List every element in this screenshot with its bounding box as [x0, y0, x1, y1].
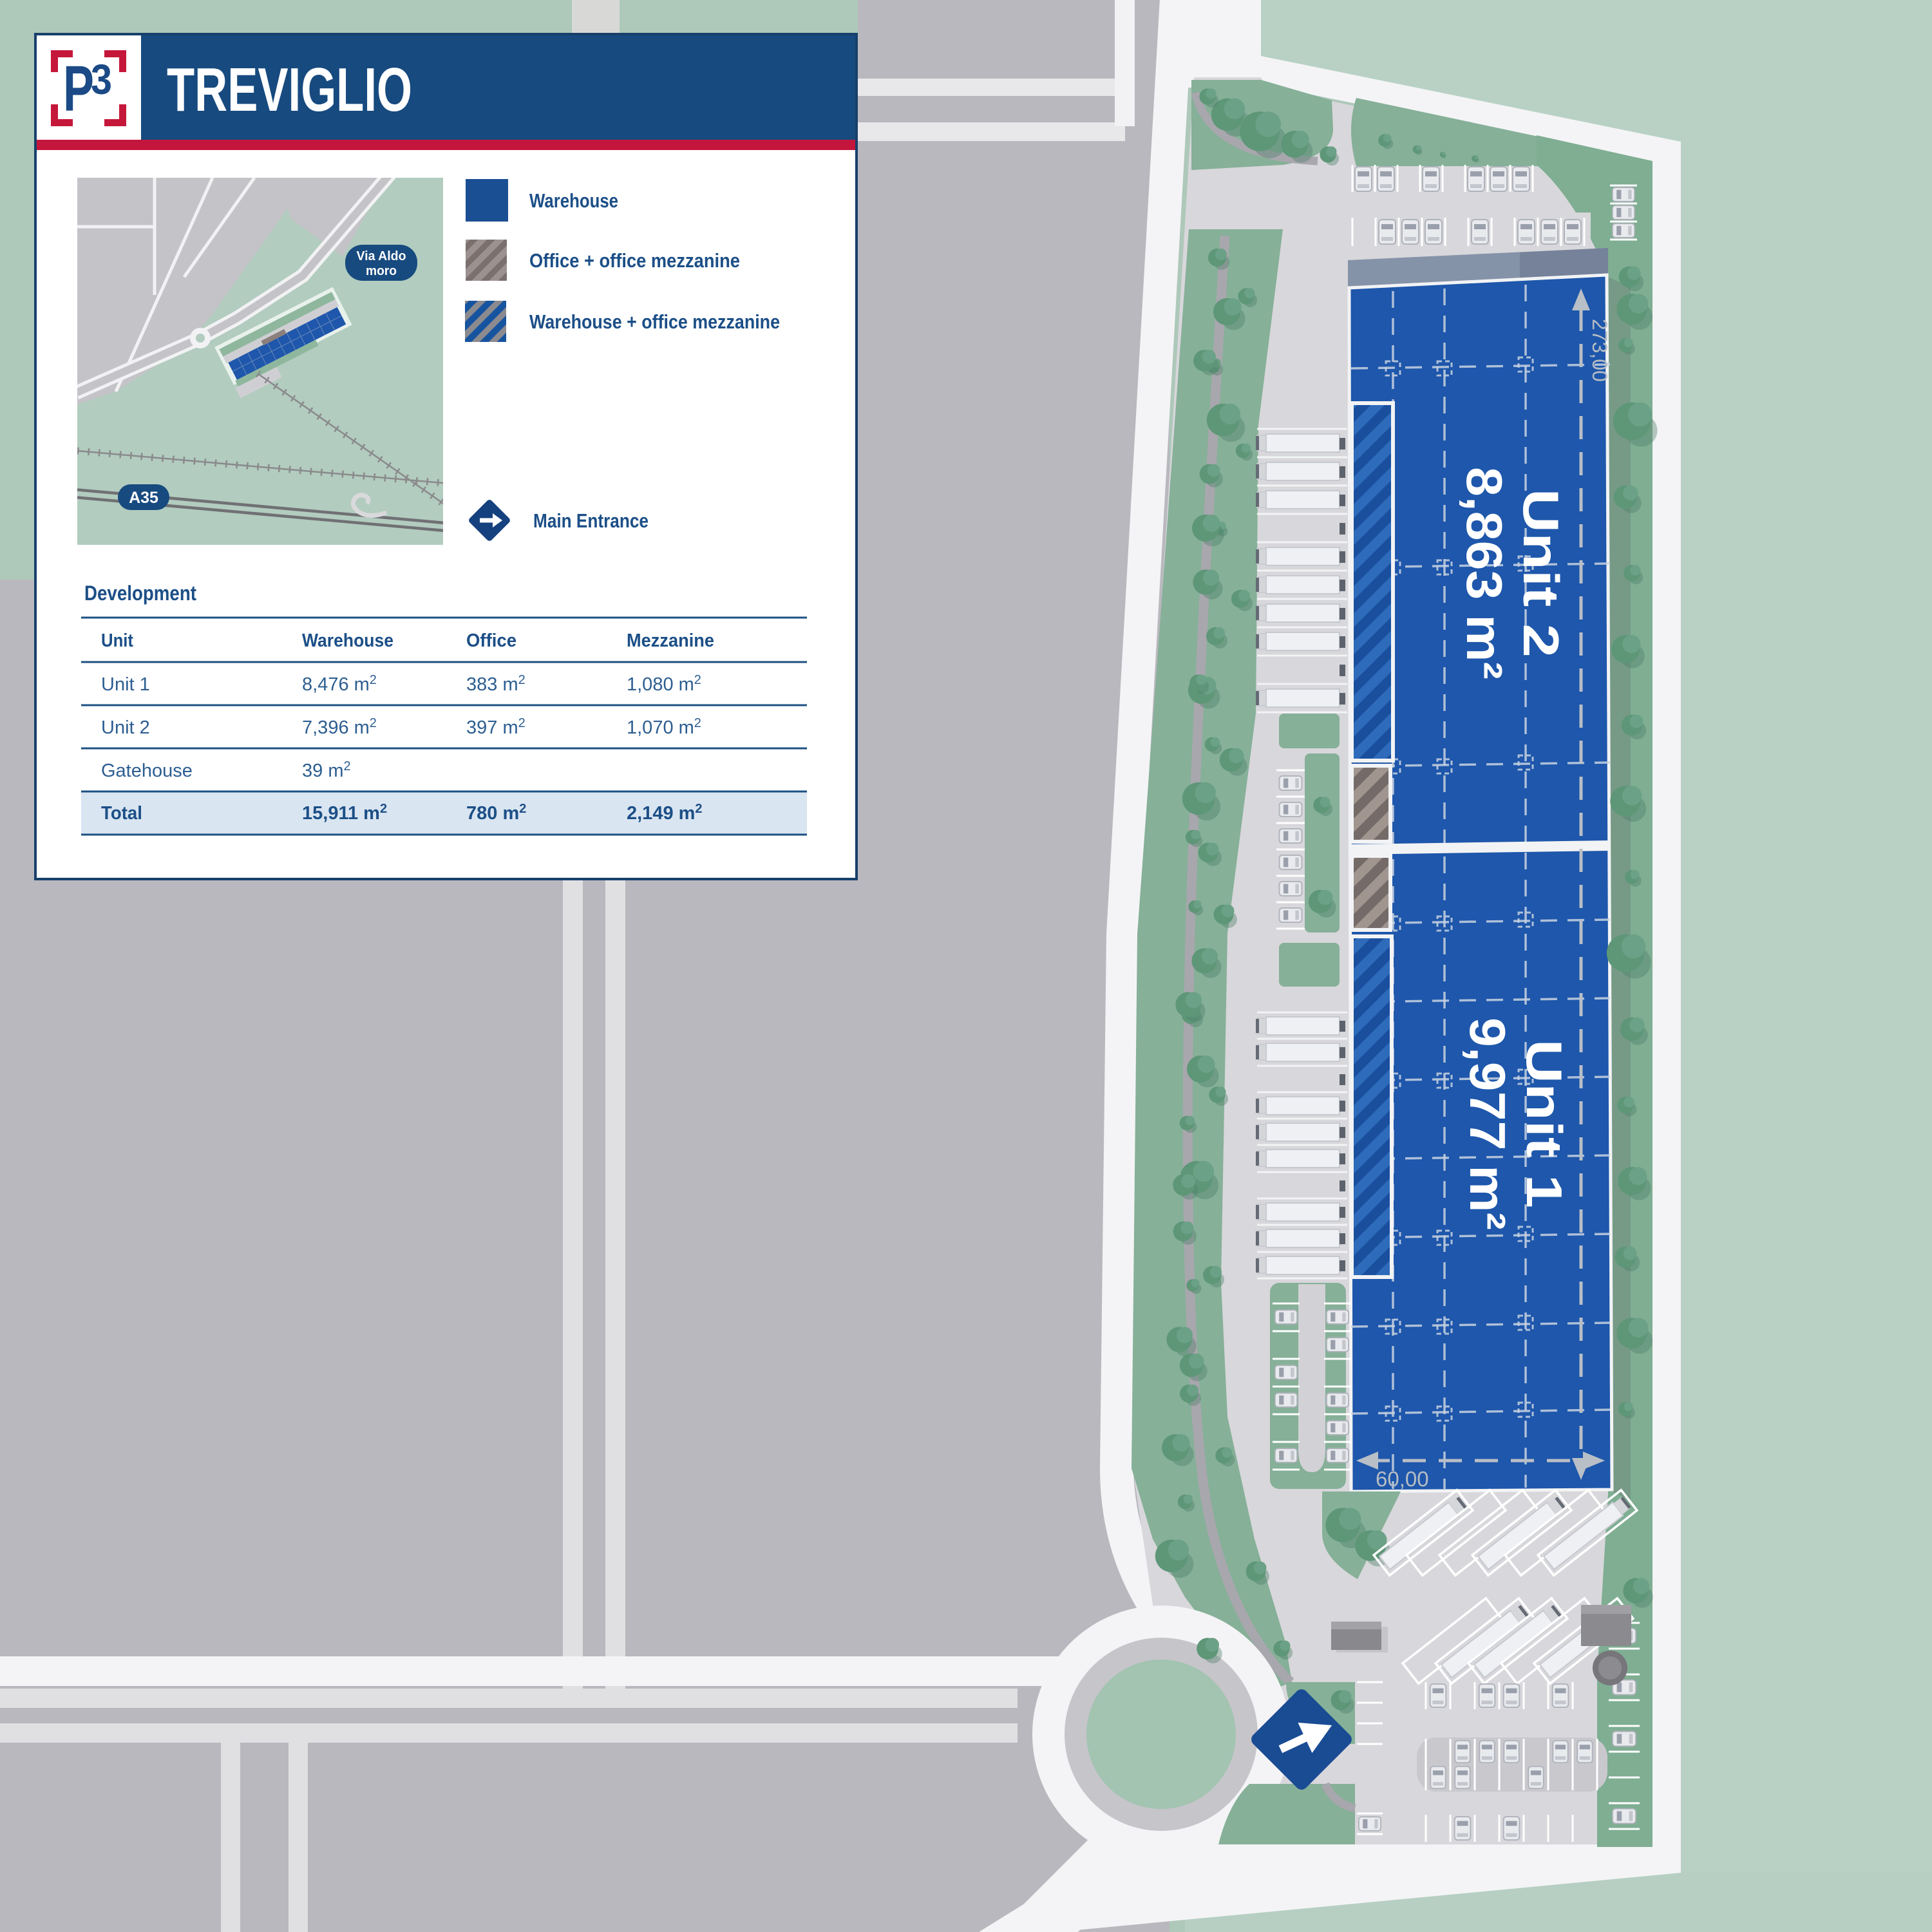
svg-text:Unit 1: Unit 1: [101, 674, 150, 695]
svg-text:273,00: 273,00: [1588, 319, 1611, 382]
svg-text:Main Entrance: Main Entrance: [533, 509, 649, 532]
svg-text:15,911 m2: 15,911 m2: [302, 802, 387, 824]
svg-text:Development: Development: [84, 582, 196, 605]
svg-text:780 m2: 780 m2: [466, 802, 526, 824]
svg-text:Unit: Unit: [101, 630, 133, 651]
svg-text:Total: Total: [101, 803, 142, 824]
svg-text:Via Aldo: Via Aldo: [357, 249, 406, 263]
svg-text:1,080 m2: 1,080 m2: [627, 673, 701, 695]
svg-text:Unit 1: Unit 1: [1516, 1039, 1573, 1208]
svg-text:Warehouse + office mezzanine: Warehouse + office mezzanine: [529, 310, 780, 333]
svg-text:Office: Office: [466, 630, 516, 651]
svg-text:1,070 m2: 1,070 m2: [627, 716, 701, 738]
svg-text:Office + office mezzanine: Office + office mezzanine: [529, 249, 740, 272]
svg-text:Warehouse: Warehouse: [529, 189, 618, 212]
svg-text:Mezzanine: Mezzanine: [627, 630, 714, 651]
svg-text:397 m2: 397 m2: [466, 716, 526, 738]
svg-text:8,476 m2: 8,476 m2: [302, 673, 377, 695]
svg-text:9,977 m²: 9,977 m²: [1459, 1018, 1516, 1230]
svg-text:A35: A35: [129, 489, 158, 507]
svg-text:8,863 m²: 8,863 m²: [1456, 467, 1513, 679]
svg-text:Gatehouse: Gatehouse: [101, 761, 193, 781]
svg-text:60,00: 60,00: [1376, 1467, 1429, 1491]
svg-text:P: P: [63, 53, 94, 125]
svg-text:3: 3: [91, 55, 112, 103]
svg-text:Unit 2: Unit 2: [101, 717, 150, 738]
svg-text:39 m2: 39 m2: [302, 759, 351, 781]
svg-text:moro: moro: [366, 264, 397, 278]
svg-text:383 m2: 383 m2: [466, 673, 526, 695]
svg-text:Warehouse: Warehouse: [302, 630, 393, 651]
svg-text:Unit 2: Unit 2: [1513, 489, 1569, 658]
svg-text:7,396 m2: 7,396 m2: [302, 716, 377, 738]
svg-text:TREVIGLIO: TREVIGLIO: [167, 55, 412, 124]
svg-text:2,149 m2: 2,149 m2: [627, 802, 703, 824]
